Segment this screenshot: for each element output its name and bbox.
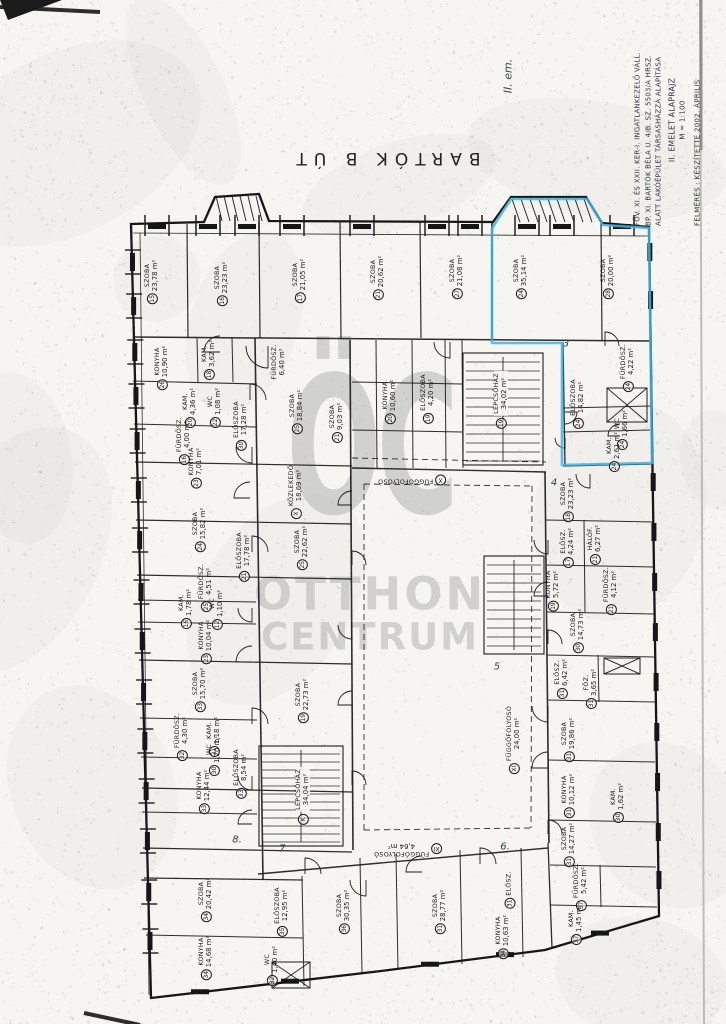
title-line: BP. XI. BARTÓK BÉLA U. 4/B. SZ. 5503/A H…	[643, 14, 654, 226]
street-name-label: BARTÓK B ÚT	[289, 148, 480, 168]
title-line: ALATT LAKÓÉPÜLET TÁRSASHÁZZÁ ALAPÍTÁSA	[654, 14, 665, 226]
title-line: M = 1:100	[678, 14, 689, 226]
title-line: FŐV. XI. ÉS XXII. KER-I. INGATLANKEZELŐ …	[632, 14, 643, 226]
floor-note-handwritten: II. em.	[502, 59, 515, 93]
scanned-page: ÖC OTTHON CENTRUM 15SZOBA23,78 m²16SZOBA…	[0, 0, 726, 1024]
title-line: FELMÉRÉS : KÉSZÍTETTE 2002. ÁPRILIS	[693, 14, 704, 226]
title-line: II. EMELET ALAPRAJZ	[666, 14, 678, 226]
